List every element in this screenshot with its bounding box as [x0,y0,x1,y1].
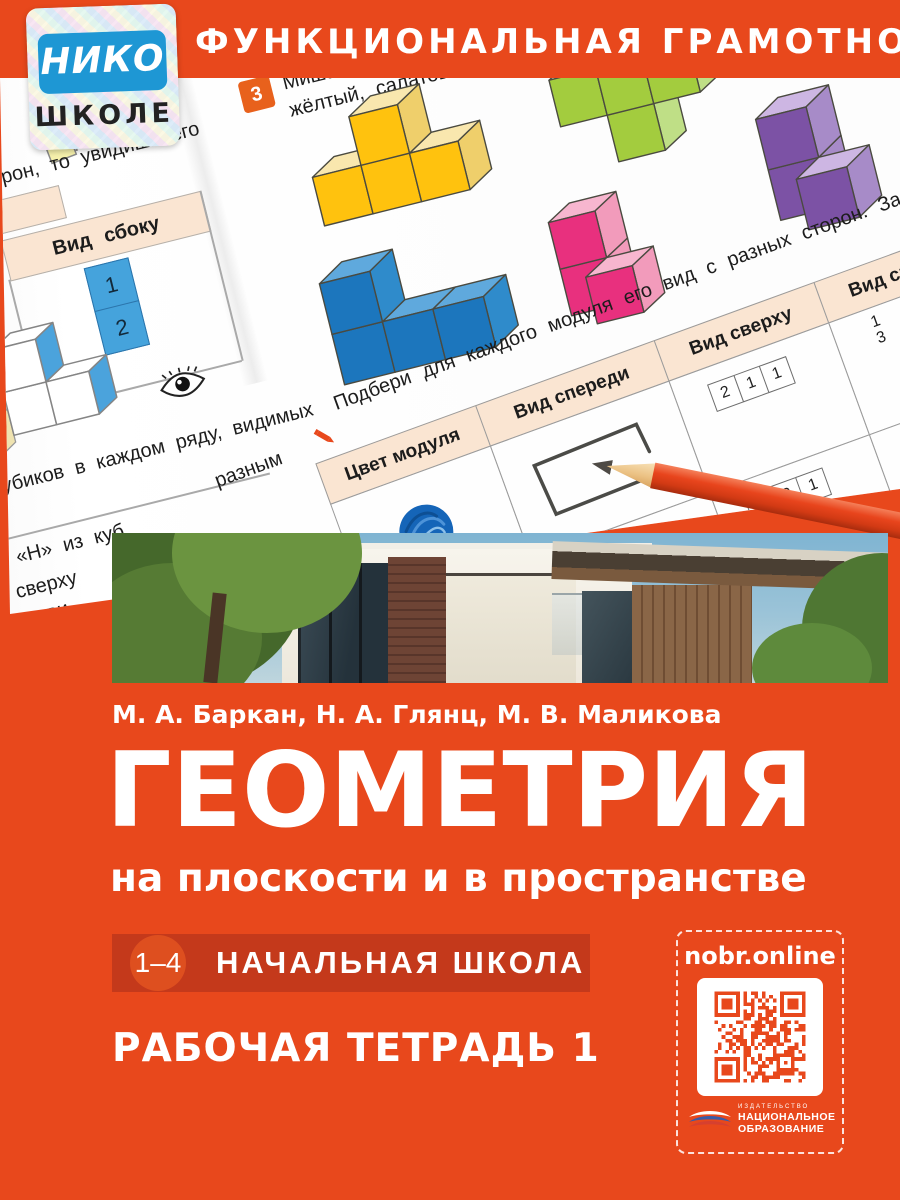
book-title: ГЕОМЕТРИЯ [106,740,814,843]
niko-logo: НИКО [37,30,167,94]
book-cover: { "colors":{ "cover_orange":"#E8481C","b… [0,0,900,1200]
qr-url: nobr.online [678,942,842,970]
strip-cell: 3 [874,328,889,348]
qr-code-pattern [707,984,813,1090]
book-subtitle: на плоскости и в пространстве [110,856,807,901]
qr-code [697,978,823,1096]
pencil-icon [309,421,340,452]
publisher-line1: НАЦИОНАЛЬНОЕ [738,1111,836,1123]
photo-wood-wall [632,585,752,683]
niko-audience: ШКОЛЕ [29,97,180,133]
task-number-badge: 3 [237,75,276,114]
publisher-line2: ОБРАЗОВАНИЕ [738,1123,836,1135]
publisher-bird-logo [688,1107,732,1133]
photo-brick-column [388,557,446,683]
fragment-ovi: ови [34,598,72,628]
grade-range: 1–4 [130,935,186,991]
top-view-strip-r1: 211 [708,356,795,411]
authors: М. А. Баркан, Н. А. Глянц, М. В. Маликов… [112,700,721,729]
grade-badge: 1–4 НАЧАЛЬНАЯ ШКОЛА [112,934,590,992]
fragment-sverhu: сверху [13,567,79,604]
qr-panel: nobr.online ИЗДАТЕЛЬСТВО НАЦИОНАЛЬНОЕ ОБ… [676,930,844,1154]
fragment-h: и «Н» из куб [0,520,127,575]
publisher-kicker: ИЗДАТЕЛЬСТВО [738,1104,836,1111]
workbook-label: РАБОЧАЯ ТЕТРАДЬ 1 [112,1026,600,1071]
series-title: ФУНКЦИОНАЛЬНАЯ ГРАМОТНОСТЬ [195,22,885,62]
fragment-raznym: разным [212,447,286,493]
publisher-logo: ИЗДАТЕЛЬСТВО НАЦИОНАЛЬНОЕ ОБРАЗОВАНИЕ [688,1104,836,1135]
photo-glazing-right [582,591,632,683]
house-photo [112,533,888,683]
publisher-name: ИЗДАТЕЛЬСТВО НАЦИОНАЛЬНОЕ ОБРАЗОВАНИЕ [738,1104,836,1135]
pencil-graphite-tip [590,456,613,475]
grade-label: НАЧАЛЬНАЯ ШКОЛА [216,934,585,992]
niko-sticker: НИКО ШКОЛЕ [26,3,181,150]
right-view-strip-r1: 13 [869,314,889,348]
eye-icon [155,360,210,405]
